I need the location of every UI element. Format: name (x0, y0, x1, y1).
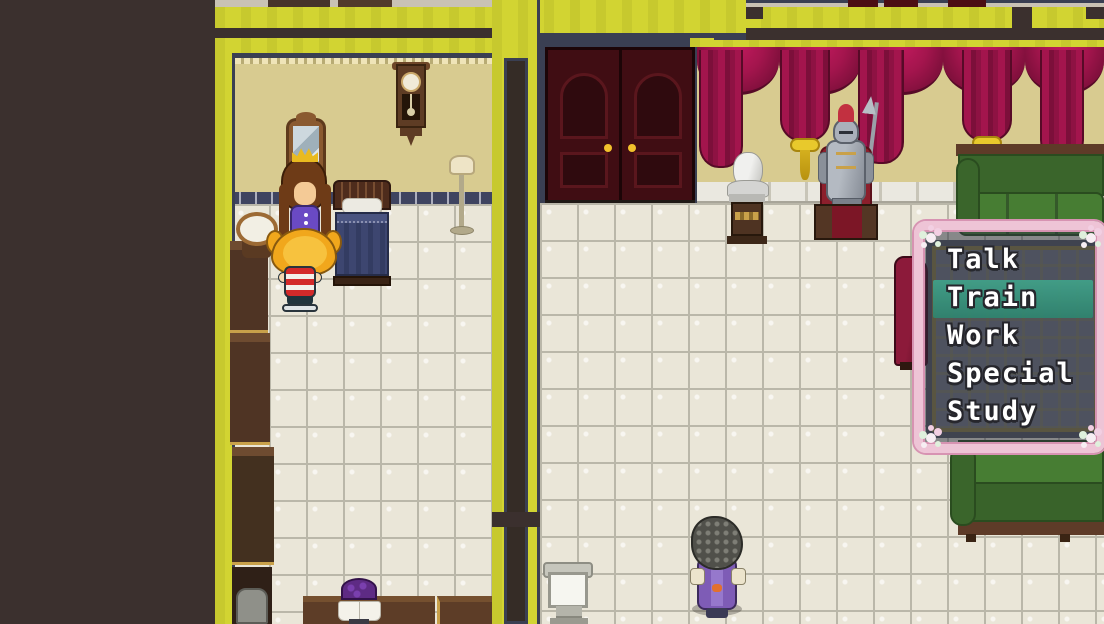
door-knob (628, 144, 636, 152)
menu-item-talk[interactable]: Talk (947, 242, 1097, 280)
upper-room-door-top (948, 0, 986, 7)
child-character (278, 260, 320, 312)
bust-pedestal (731, 202, 763, 236)
princess-face (294, 182, 316, 205)
feet (706, 608, 728, 618)
command-menu-list: Talk Train Work Special Study (923, 242, 1097, 432)
partition-wall-core (504, 58, 528, 624)
child-striped-body (284, 266, 316, 298)
upper-room-door-top (884, 0, 918, 7)
mirror-crest (296, 112, 316, 122)
knight-armor-statue (808, 96, 892, 244)
robed-character (688, 516, 746, 620)
upper-room-trim (745, 0, 1104, 3)
child-base (282, 304, 318, 312)
desk (437, 596, 492, 624)
wall-band-notch (745, 7, 763, 19)
wall-top-over-door (518, 0, 746, 33)
princess-hair-lock (321, 184, 331, 236)
big-grey-hair (691, 516, 743, 570)
upper-room-door-top (848, 0, 878, 7)
curtain-drape-tied (962, 50, 1012, 142)
sofa-arm (950, 446, 976, 526)
bust-pedestal-base (727, 236, 767, 244)
partition-passage-gap (492, 512, 540, 527)
door-knob (604, 144, 612, 152)
robe-cuff (690, 568, 705, 585)
princess-hair-lock (279, 184, 289, 236)
bust-plinth (729, 194, 765, 202)
clock-face (401, 72, 421, 92)
knight-pedestal (814, 204, 878, 240)
bookshelf (230, 333, 270, 445)
robe-cuff (731, 568, 746, 585)
floor-lamp-base (450, 226, 474, 235)
frame-flower-ornament (1077, 224, 1103, 250)
washstand-panel (548, 572, 588, 608)
princess-crown (292, 147, 318, 162)
double-door (545, 47, 695, 203)
door-panel (634, 152, 682, 188)
frame-flower-ornament (917, 224, 943, 250)
sofa-front (958, 482, 1104, 522)
menu-item-work[interactable]: Work (947, 318, 1097, 356)
bookshelf (232, 447, 274, 565)
sack (236, 588, 268, 624)
door-panel (560, 152, 608, 188)
washstand (543, 562, 593, 624)
floor-lamp-shade (449, 155, 475, 175)
knight-body (826, 140, 866, 202)
purple-dome-ornament (341, 578, 377, 600)
knight-plume (838, 104, 854, 122)
door-panel (634, 73, 682, 139)
bust-statue (726, 148, 770, 244)
void-gap (746, 28, 1104, 40)
wall-clock-bracket (400, 128, 422, 136)
game-viewport: Talk Train Work Special Study (0, 0, 1104, 624)
sofa-wood-trim (958, 522, 1104, 535)
frame-flower-ornament (1077, 424, 1103, 450)
wall-clock (396, 64, 426, 128)
command-menu-window: Talk Train Work Special Study (914, 221, 1104, 453)
sofa-leg (1060, 534, 1070, 542)
washstand-base (550, 618, 588, 624)
held-item (712, 584, 722, 592)
floor-lamp-pole (459, 175, 464, 227)
open-book (337, 600, 381, 622)
menu-item-train[interactable]: Train (933, 280, 1093, 318)
door-panel (560, 73, 608, 139)
menu-item-special[interactable]: Special (947, 356, 1097, 394)
clock-pendulum-window (402, 94, 420, 120)
wall-band-notch (1086, 7, 1104, 19)
menu-item-study[interactable]: Study (947, 394, 1097, 432)
sofa-leg (966, 534, 976, 542)
frame-flower-ornament (917, 424, 943, 450)
